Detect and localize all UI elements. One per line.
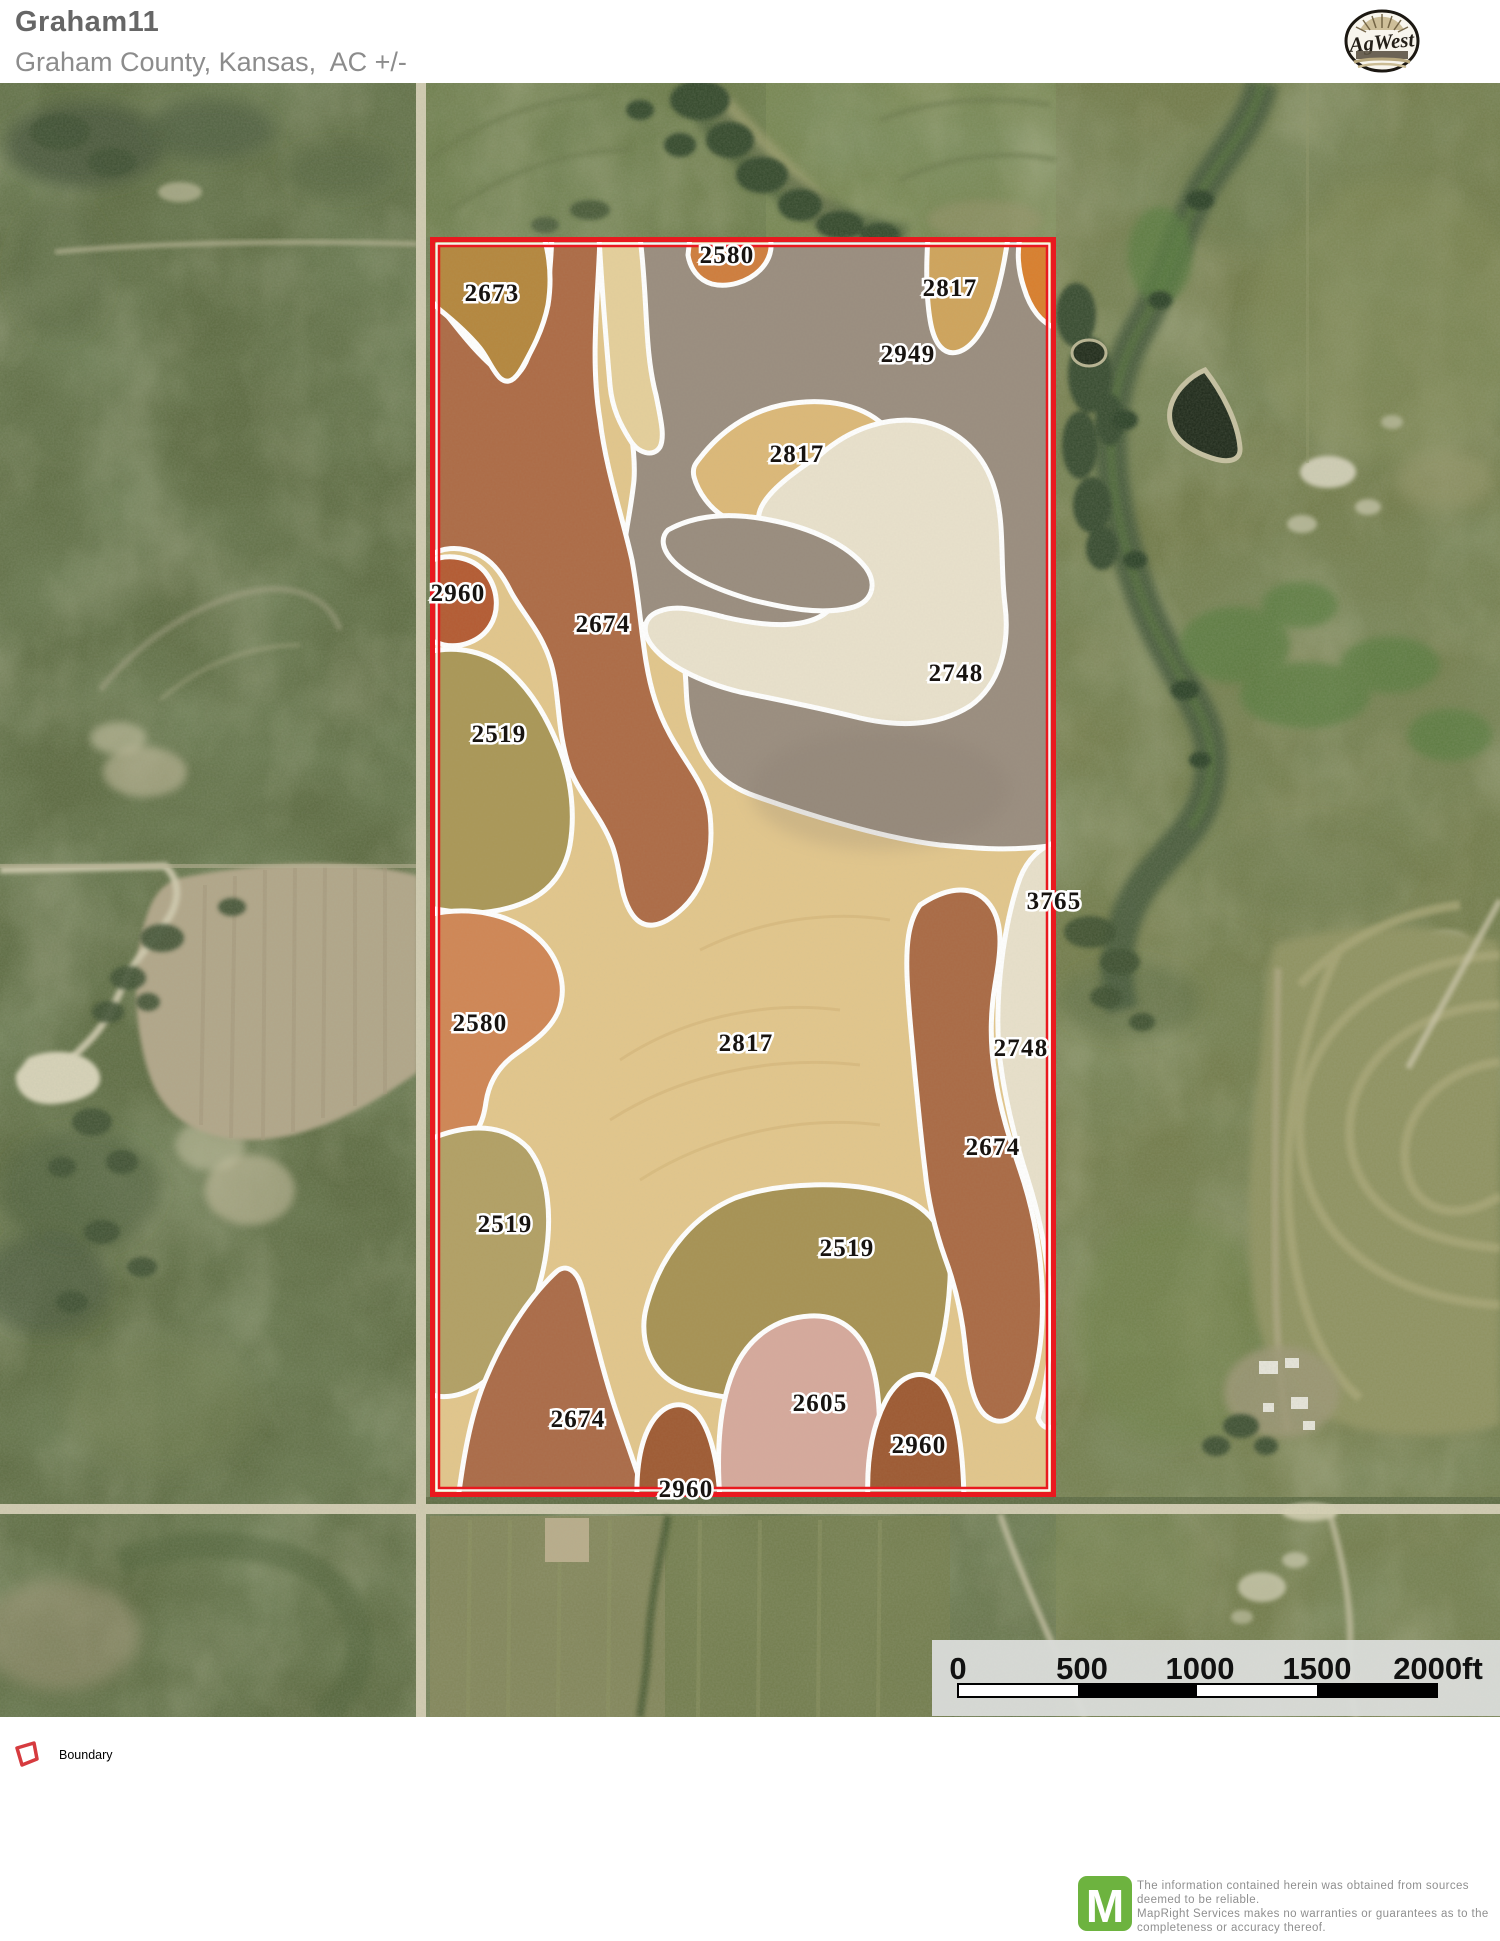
svg-text:Graham County, Kansas, AC +/-: Graham County, Kansas, AC +/-: [15, 47, 407, 77]
svg-text:deemed to be reliable.: deemed to be reliable.: [1137, 1894, 1260, 1906]
svg-text:completeness or accuracy there: completeness or accuracy thereof.: [1137, 1922, 1326, 1934]
svg-text:2605: 2605: [793, 1390, 848, 1417]
svg-text:500: 500: [1056, 1651, 1108, 1686]
svg-text:2960: 2960: [431, 580, 486, 607]
svg-text:2519: 2519: [472, 721, 527, 748]
svg-text:2674: 2674: [576, 611, 631, 638]
svg-text:2817: 2817: [719, 1030, 774, 1057]
svg-text:2519: 2519: [478, 1211, 533, 1238]
svg-text:Boundary: Boundary: [59, 1748, 113, 1762]
svg-text:0: 0: [949, 1651, 966, 1686]
svg-text:3765: 3765: [1027, 888, 1082, 915]
svg-text:2960: 2960: [659, 1476, 714, 1503]
svg-text:2949: 2949: [881, 341, 936, 368]
svg-text:2673: 2673: [465, 280, 520, 307]
svg-text:2674: 2674: [966, 1134, 1021, 1161]
svg-text:2748: 2748: [929, 660, 984, 687]
svg-text:2960: 2960: [892, 1432, 947, 1459]
svg-text:2817: 2817: [923, 275, 978, 302]
svg-text:2817: 2817: [770, 441, 825, 468]
svg-text:1000: 1000: [1166, 1651, 1235, 1686]
svg-text:M: M: [1086, 1880, 1124, 1932]
svg-text:The information contained here: The information contained herein was obt…: [1137, 1880, 1469, 1892]
svg-text:2000ft: 2000ft: [1393, 1651, 1483, 1686]
svg-text:2519: 2519: [820, 1235, 875, 1262]
svg-text:Graham11: Graham11: [15, 6, 159, 38]
svg-text:2580: 2580: [700, 242, 755, 269]
svg-text:2580: 2580: [453, 1010, 508, 1037]
svg-text:1500: 1500: [1283, 1651, 1352, 1686]
svg-text:2748: 2748: [994, 1035, 1049, 1062]
svg-text:MapRight Services makes no war: MapRight Services makes no warranties or…: [1137, 1908, 1489, 1920]
svg-text:2674: 2674: [551, 1406, 606, 1433]
